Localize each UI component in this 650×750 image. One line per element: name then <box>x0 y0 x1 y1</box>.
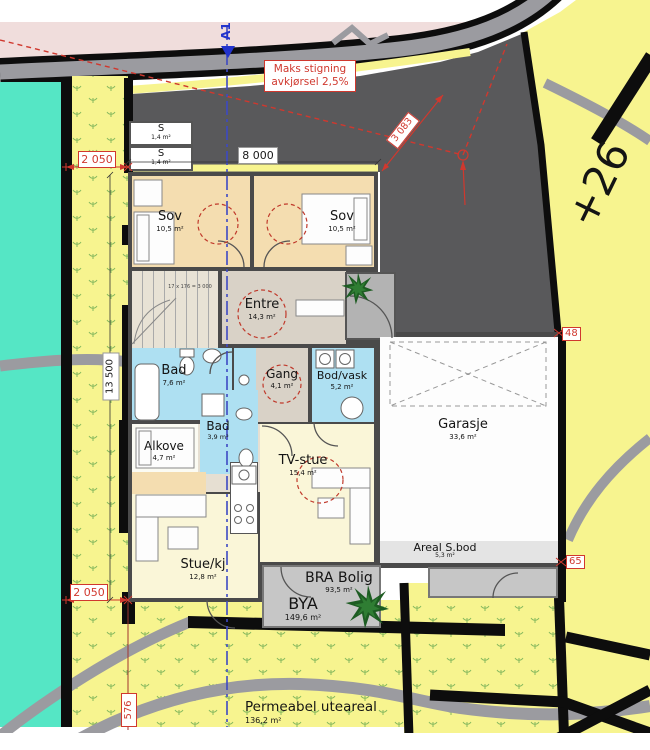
driveway-slope-note: Maks stigning avkjørsel 2,5% <box>264 60 356 92</box>
boundary-point-48: 48 <box>562 327 581 341</box>
storage-s1 <box>129 121 193 146</box>
terrace-main <box>262 565 381 628</box>
stairs <box>132 271 218 348</box>
room-tv-stue <box>260 424 374 562</box>
room-sov-2 <box>254 176 374 267</box>
terrace-side <box>428 567 558 598</box>
kitchen-counter <box>230 462 258 534</box>
room-alkove <box>132 424 198 472</box>
neighbor-green-area <box>0 82 61 727</box>
room-sbod <box>380 541 558 563</box>
site-plan-drawing: S 1,4 m² S 1,4 m² Sov10,5 m² Sov10,5 m² … <box>0 0 650 750</box>
entry-porch <box>345 272 396 340</box>
room-sov-1 <box>132 176 250 267</box>
room-wc-shower <box>234 348 256 390</box>
boundary-point-65: 65 <box>566 555 585 569</box>
storage-s2 <box>129 146 193 171</box>
room-bod-vask <box>312 348 374 422</box>
stair-note: 17 x 176 = 3 000 <box>160 284 220 290</box>
room-gang <box>256 348 308 422</box>
dining-patch <box>132 472 206 494</box>
section-marker-a1: A1 <box>219 18 233 44</box>
room-entre <box>222 271 346 344</box>
room-garasje <box>380 337 558 541</box>
